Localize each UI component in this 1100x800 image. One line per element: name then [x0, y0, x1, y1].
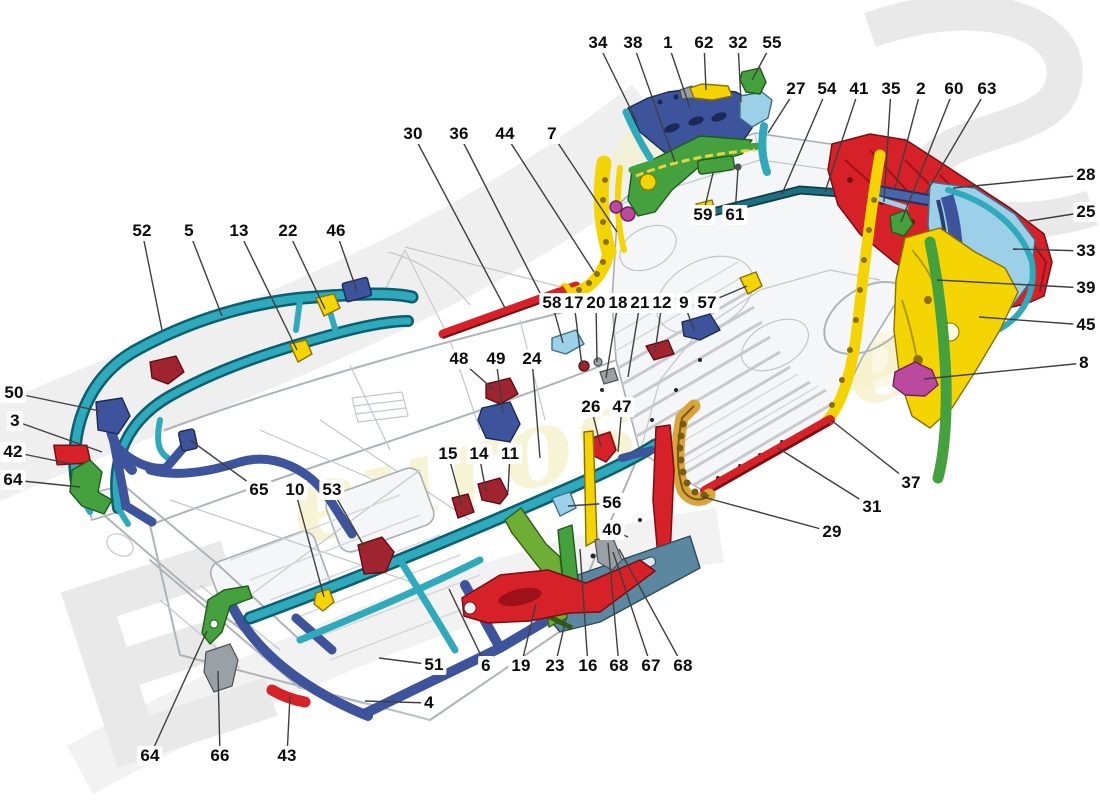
callout-55: 55: [759, 33, 784, 53]
part-32-wing: [740, 92, 772, 127]
callout-41: 41: [846, 79, 871, 99]
callout-52: 52: [129, 221, 154, 241]
callout-26: 26: [578, 397, 603, 417]
callout-7: 7: [544, 124, 560, 144]
callout-19: 19: [508, 656, 533, 676]
callout-66: 66: [207, 746, 232, 766]
callout-13: 13: [226, 221, 251, 241]
callout-36: 36: [446, 124, 471, 144]
callout-39: 39: [1073, 278, 1098, 298]
part-47-pillar: [653, 425, 674, 557]
part-55-bracket: [740, 68, 766, 94]
callout-34: 34: [585, 33, 610, 53]
callout-14: 14: [466, 444, 491, 464]
callout-37: 37: [898, 473, 923, 493]
callout-50: 50: [1, 383, 26, 403]
leader-line-28: [953, 175, 1086, 188]
part-17-pin: [579, 361, 589, 371]
callout-22: 22: [275, 221, 300, 241]
callout-68: 68: [670, 656, 695, 676]
callout-15: 15: [435, 444, 460, 464]
callout-5: 5: [181, 221, 197, 241]
callout-33: 33: [1073, 241, 1098, 261]
callout-48: 48: [446, 349, 471, 369]
part-20-pin: [594, 358, 602, 366]
leader-line-52: [142, 231, 162, 330]
part-27-trim: [762, 126, 767, 172]
leader-line-29: [703, 497, 832, 532]
callout-65: 65: [246, 480, 271, 500]
callout-51: 51: [421, 655, 446, 675]
leader-line-31: [778, 448, 872, 507]
callout-12: 12: [649, 293, 674, 313]
callout-64: 64: [0, 470, 25, 490]
callout-44: 44: [492, 124, 517, 144]
callout-40: 40: [599, 520, 624, 540]
callout-61: 61: [722, 205, 747, 225]
callout-43: 43: [274, 746, 299, 766]
diagram-artwork: eurospares: [0, 0, 1100, 800]
callout-30: 30: [400, 124, 425, 144]
parts-diagram: eurospares: [0, 0, 1100, 800]
callout-53: 53: [319, 480, 344, 500]
callout-23: 23: [542, 656, 567, 676]
callout-25: 25: [1073, 202, 1098, 222]
callout-31: 31: [859, 497, 884, 517]
callout-42: 42: [0, 442, 25, 462]
callout-4: 4: [421, 693, 437, 713]
leader-line-5: [189, 231, 222, 316]
callout-63: 63: [974, 79, 999, 99]
callout-49: 49: [483, 349, 508, 369]
callout-16: 16: [575, 656, 600, 676]
callout-3: 3: [7, 411, 23, 431]
callout-54: 54: [814, 79, 839, 99]
part-10-clamp: [314, 589, 334, 611]
callout-67: 67: [638, 656, 663, 676]
callout-9: 9: [676, 293, 692, 313]
callout-60: 60: [941, 79, 966, 99]
callout-6: 6: [478, 656, 494, 676]
callout-10: 10: [282, 480, 307, 500]
part-44-grommet: [610, 201, 622, 213]
callout-8: 8: [1076, 353, 1092, 373]
callout-2: 2: [913, 79, 929, 99]
callout-47: 47: [609, 397, 634, 417]
callout-57: 57: [694, 293, 719, 313]
callout-24: 24: [519, 349, 544, 369]
callout-46: 46: [323, 221, 348, 241]
callout-27: 27: [783, 79, 808, 99]
callout-28: 28: [1073, 165, 1098, 185]
callout-64: 64: [137, 746, 162, 766]
leader-line-4: [365, 701, 429, 703]
callout-11: 11: [498, 444, 522, 464]
callout-29: 29: [819, 522, 844, 542]
callout-32: 32: [725, 33, 750, 53]
callout-45: 45: [1073, 315, 1098, 335]
callout-56: 56: [599, 493, 624, 513]
callout-1: 1: [660, 33, 676, 53]
callout-38: 38: [620, 33, 645, 53]
callout-59: 59: [690, 205, 715, 225]
callout-62: 62: [691, 33, 716, 53]
callout-35: 35: [878, 79, 903, 99]
callout-68: 68: [606, 656, 631, 676]
